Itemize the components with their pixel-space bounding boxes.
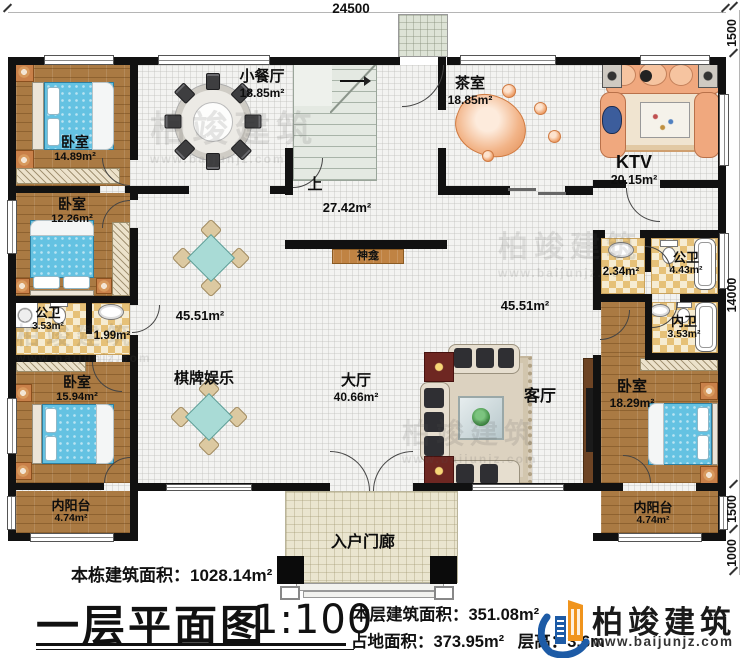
wall-segment: [8, 296, 130, 303]
wall-segment: [696, 483, 726, 491]
room-name: 内阳台: [608, 500, 698, 515]
room-name: 棋牌娱乐: [159, 370, 249, 388]
room-area: 4.74m²: [26, 513, 116, 525]
nightstand: [14, 62, 34, 82]
window: [7, 496, 16, 530]
logo-website: www.baijunjz.com: [593, 634, 734, 649]
wall-segment: [130, 228, 138, 305]
room-name: 茶室: [425, 75, 515, 93]
nightstand: [96, 278, 112, 294]
dining-chair: [165, 115, 182, 129]
tea-stool: [548, 130, 561, 143]
floor-area-label: 本层建筑面积：: [353, 606, 469, 624]
dining-chair: [245, 115, 262, 129]
bed-sheet: [96, 404, 114, 464]
nightstand: [700, 382, 718, 400]
sliding-door: [538, 192, 566, 195]
wardrobe: [112, 222, 130, 296]
room-label-bedroom-tl: 卧室 14.89m²: [30, 134, 120, 164]
sofa-cushion: [424, 436, 444, 456]
sofa-cushion: [480, 464, 498, 484]
window: [472, 484, 564, 491]
bed-pillow: [697, 407, 709, 432]
wall-segment: [130, 483, 138, 541]
nightstand: [14, 278, 30, 294]
room-area: 27.42m²: [302, 200, 392, 215]
bed-pillow: [33, 276, 60, 289]
title-underline: [36, 643, 346, 646]
dimension-right-1500b: 1500: [725, 487, 739, 531]
room-name: 客厅: [495, 388, 585, 407]
room-label-hall-center: 27.42m²: [302, 200, 392, 215]
dining-table-top: [193, 102, 233, 142]
wall-segment: [593, 483, 623, 491]
total-area-label: 本栋建筑面积：: [71, 566, 190, 585]
sliding-door: [508, 188, 536, 191]
room-area: 1.99m²: [67, 330, 157, 344]
room-area: 20.15m²: [589, 173, 679, 188]
sink: [98, 304, 124, 320]
sofa-cushion: [456, 464, 474, 484]
sofa-cushion: [454, 348, 472, 368]
room-label-porch: 入户门廊: [318, 534, 408, 553]
wall-segment: [130, 57, 138, 160]
building-logo-icon: [538, 596, 590, 658]
wall-segment: [640, 230, 726, 238]
dimension-tick: [729, 1, 738, 10]
dining-chair: [206, 153, 220, 170]
room-label-open-right: 45.51m²: [480, 298, 570, 313]
dimension-right-1000: 1000: [725, 531, 739, 575]
sofa-cushion: [498, 348, 514, 368]
wall-segment: [645, 353, 726, 360]
window: [7, 398, 17, 454]
room-label-balcony-right: 内阳台 4.74m²: [608, 500, 698, 528]
wall-segment: [8, 186, 100, 193]
room-area: 40.66m²: [311, 390, 401, 404]
dimension-top: 24500: [311, 1, 391, 16]
room-label-hall: 大厅 40.66m²: [311, 372, 401, 404]
room-label-living: 客厅: [495, 388, 585, 407]
tea-stool: [534, 102, 547, 115]
bed-sheet: [648, 403, 664, 465]
ktv-sofa-right: [694, 92, 720, 158]
room-name: 卧室: [32, 374, 122, 391]
wall-segment: [137, 186, 189, 194]
wall-segment: [440, 186, 510, 195]
window: [158, 55, 270, 65]
room-area: 18.29m²: [587, 396, 677, 410]
nightstand: [14, 462, 32, 480]
bed-headboard: [32, 404, 42, 464]
room-name: 公卫: [641, 250, 731, 265]
dimension-right-1500a: 1500: [725, 11, 739, 55]
porch-step: [296, 583, 444, 591]
room-name: 卧室: [27, 196, 117, 213]
sofa-cushion: [424, 412, 444, 432]
room-label-bedroom-bl: 卧室 15.94m²: [32, 374, 122, 404]
column: [277, 556, 304, 584]
room-name: 卧室: [30, 134, 120, 151]
room-area: 4.74m²: [608, 515, 698, 527]
sofa-cushion: [424, 388, 444, 408]
bed-pillow: [45, 436, 57, 461]
nightstand: [700, 466, 718, 484]
room-label-dining: 小餐厅 18.85m²: [217, 68, 307, 100]
wall-segment: [122, 355, 138, 362]
room-name: 内卫: [639, 314, 729, 329]
window: [640, 55, 710, 65]
sink: [608, 242, 634, 258]
column-base: [434, 586, 454, 600]
wall-segment: [680, 294, 726, 302]
column: [430, 556, 457, 584]
person-figure: [602, 106, 622, 134]
side-table-lamp: [424, 456, 454, 486]
wall-segment: [8, 355, 96, 362]
stairs-direction: 上: [270, 176, 360, 194]
room-name: 公卫: [3, 306, 93, 321]
floor-area-value: 351.08m²: [469, 606, 540, 624]
room-label-tea: 茶室 18.85m²: [425, 75, 515, 107]
room-name: 卧室: [587, 378, 677, 396]
floor-plan: 柏竣建筑 www.baijunjz.com 柏竣建筑 www.baijunjz.…: [0, 0, 750, 666]
room-name: KTV: [589, 152, 679, 173]
room-label-bedroom-br: 卧室 18.29m²: [587, 378, 677, 410]
wall-segment: [285, 240, 447, 249]
room-label-vanity-left: 1.99m²: [67, 330, 157, 344]
room-name: 入户门廊: [318, 534, 408, 553]
dimension-line-right: [739, 10, 740, 575]
plant: [472, 408, 490, 426]
wall-segment: [593, 230, 605, 238]
window: [7, 200, 17, 254]
total-area-line: 本栋建筑面积：1028.14m²: [71, 561, 272, 586]
room-area: 4.43m²: [641, 265, 731, 277]
room-label-open-left: 45.51m²: [155, 308, 245, 323]
bed-pillow: [45, 408, 57, 433]
ktv-cushion: [669, 64, 693, 86]
stair-arrow-line: [340, 80, 366, 82]
floor-area-line: 本层建筑面积：351.08m²: [353, 601, 539, 625]
room-label-bathroom-right: 公卫 4.43m²: [641, 250, 731, 278]
room-name: 大厅: [311, 372, 401, 390]
bed-pillow: [47, 87, 60, 115]
wall-segment: [8, 483, 104, 490]
window: [460, 55, 556, 65]
tea-stool: [482, 150, 494, 162]
room-area: 45.51m²: [480, 298, 570, 313]
window: [44, 55, 114, 65]
room-name: 内阳台: [26, 498, 116, 513]
side-table-lamp: [424, 352, 454, 382]
room-area: 15.94m²: [32, 391, 122, 404]
room-area: 18.85m²: [425, 93, 515, 107]
bed-pillow: [63, 276, 90, 289]
room-area: 3.53m²: [639, 329, 729, 341]
stair-arrow-head: [364, 76, 371, 86]
logo-icon: [538, 596, 590, 658]
stairs-up-label: 上: [270, 176, 360, 194]
land-area-value: 373.95m²: [434, 633, 505, 651]
stair-break-line: [330, 63, 377, 113]
room-label-bathroom-left: 公卫 3.53m²: [3, 306, 93, 333]
room-area: 45.51m²: [155, 308, 245, 323]
sofa-cushion: [476, 348, 494, 368]
room-label-balcony-left: 内阳台 4.74m²: [26, 498, 116, 526]
window: [30, 533, 114, 542]
room-name: 小餐厅: [217, 68, 307, 86]
window: [719, 94, 729, 166]
room-label-bathroom-inner: 内卫 3.53m²: [639, 314, 729, 342]
window: [166, 484, 252, 491]
window: [618, 533, 702, 542]
wall-segment: [593, 355, 601, 483]
title-underline-thin: [36, 649, 354, 650]
land-area-label: 占地面积：: [351, 633, 434, 651]
room-area: 12.26m²: [27, 213, 117, 226]
wall-segment: [593, 294, 652, 302]
dimension-right-14000: 14000: [725, 267, 739, 323]
ktv-speaker: [602, 64, 622, 88]
shrine-label: 神龛: [332, 250, 404, 263]
bed-pillow: [697, 435, 709, 460]
toilet-tank: [660, 240, 678, 247]
room-label-ktv: KTV 20.15m²: [589, 152, 679, 188]
room-area: 14.89m²: [30, 151, 120, 164]
person-figure: [640, 70, 652, 82]
room-name: 神龛: [332, 250, 404, 263]
room-label-chess: 棋牌娱乐: [159, 370, 249, 388]
ktv-table: [640, 102, 690, 138]
room-area: 18.85m²: [217, 86, 307, 100]
ktv-speaker: [698, 64, 718, 88]
gporch: [398, 14, 448, 57]
room-label-bedroom-ml: 卧室 12.26m²: [27, 196, 117, 226]
total-area-value: 1028.14m²: [190, 566, 272, 585]
